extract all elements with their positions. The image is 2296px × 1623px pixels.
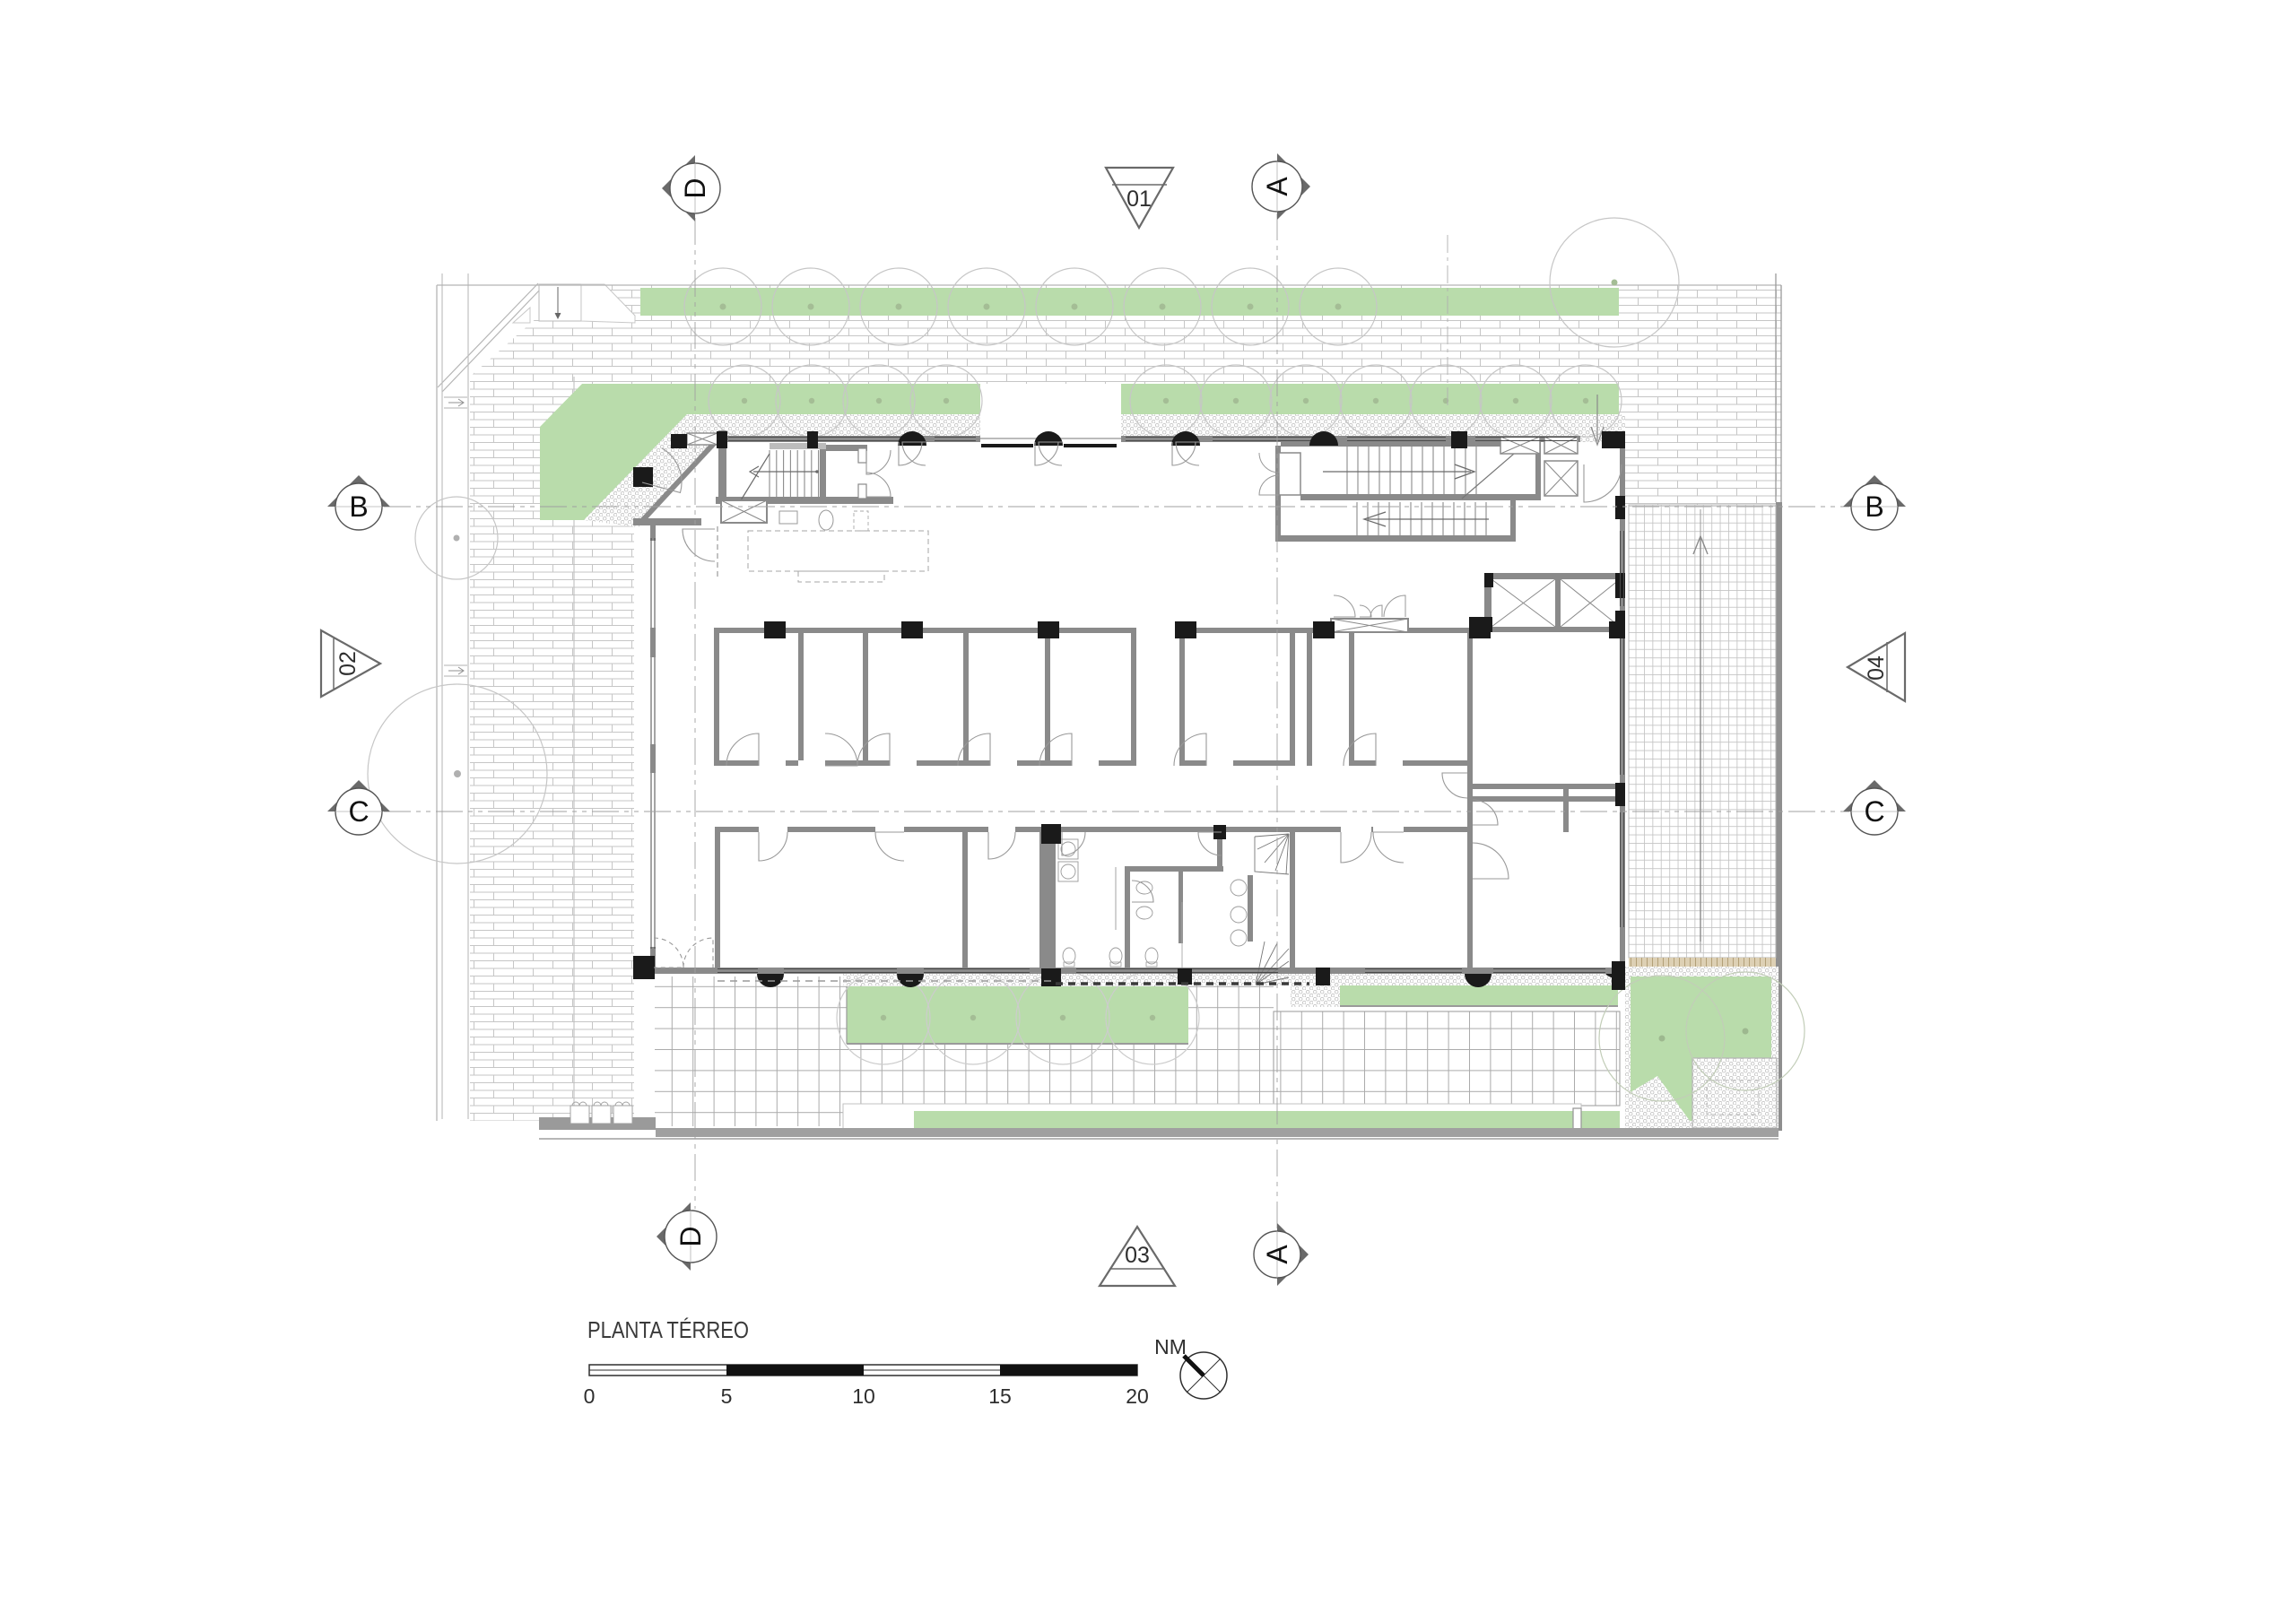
svg-text:5: 5	[721, 1384, 733, 1408]
svg-text:D: D	[679, 178, 711, 198]
svg-text:B: B	[349, 490, 368, 523]
svg-text:B: B	[1865, 490, 1883, 523]
svg-text:NM: NM	[1154, 1335, 1187, 1358]
svg-text:A: A	[1261, 1245, 1293, 1264]
svg-text:PLANTA TÉRREO: PLANTA TÉRREO	[587, 1316, 749, 1343]
svg-text:10: 10	[852, 1384, 875, 1408]
svg-text:0: 0	[584, 1384, 596, 1408]
svg-text:C: C	[348, 795, 369, 828]
svg-text:02: 02	[335, 651, 361, 676]
svg-text:A: A	[1261, 177, 1293, 196]
svg-text:20: 20	[1126, 1384, 1149, 1408]
svg-text:C: C	[1864, 795, 1884, 828]
svg-text:15: 15	[988, 1384, 1012, 1408]
svg-text:03: 03	[1125, 1243, 1150, 1268]
svg-text:D: D	[674, 1226, 707, 1246]
svg-text:01: 01	[1126, 187, 1152, 212]
svg-text:04: 04	[1864, 655, 1889, 681]
